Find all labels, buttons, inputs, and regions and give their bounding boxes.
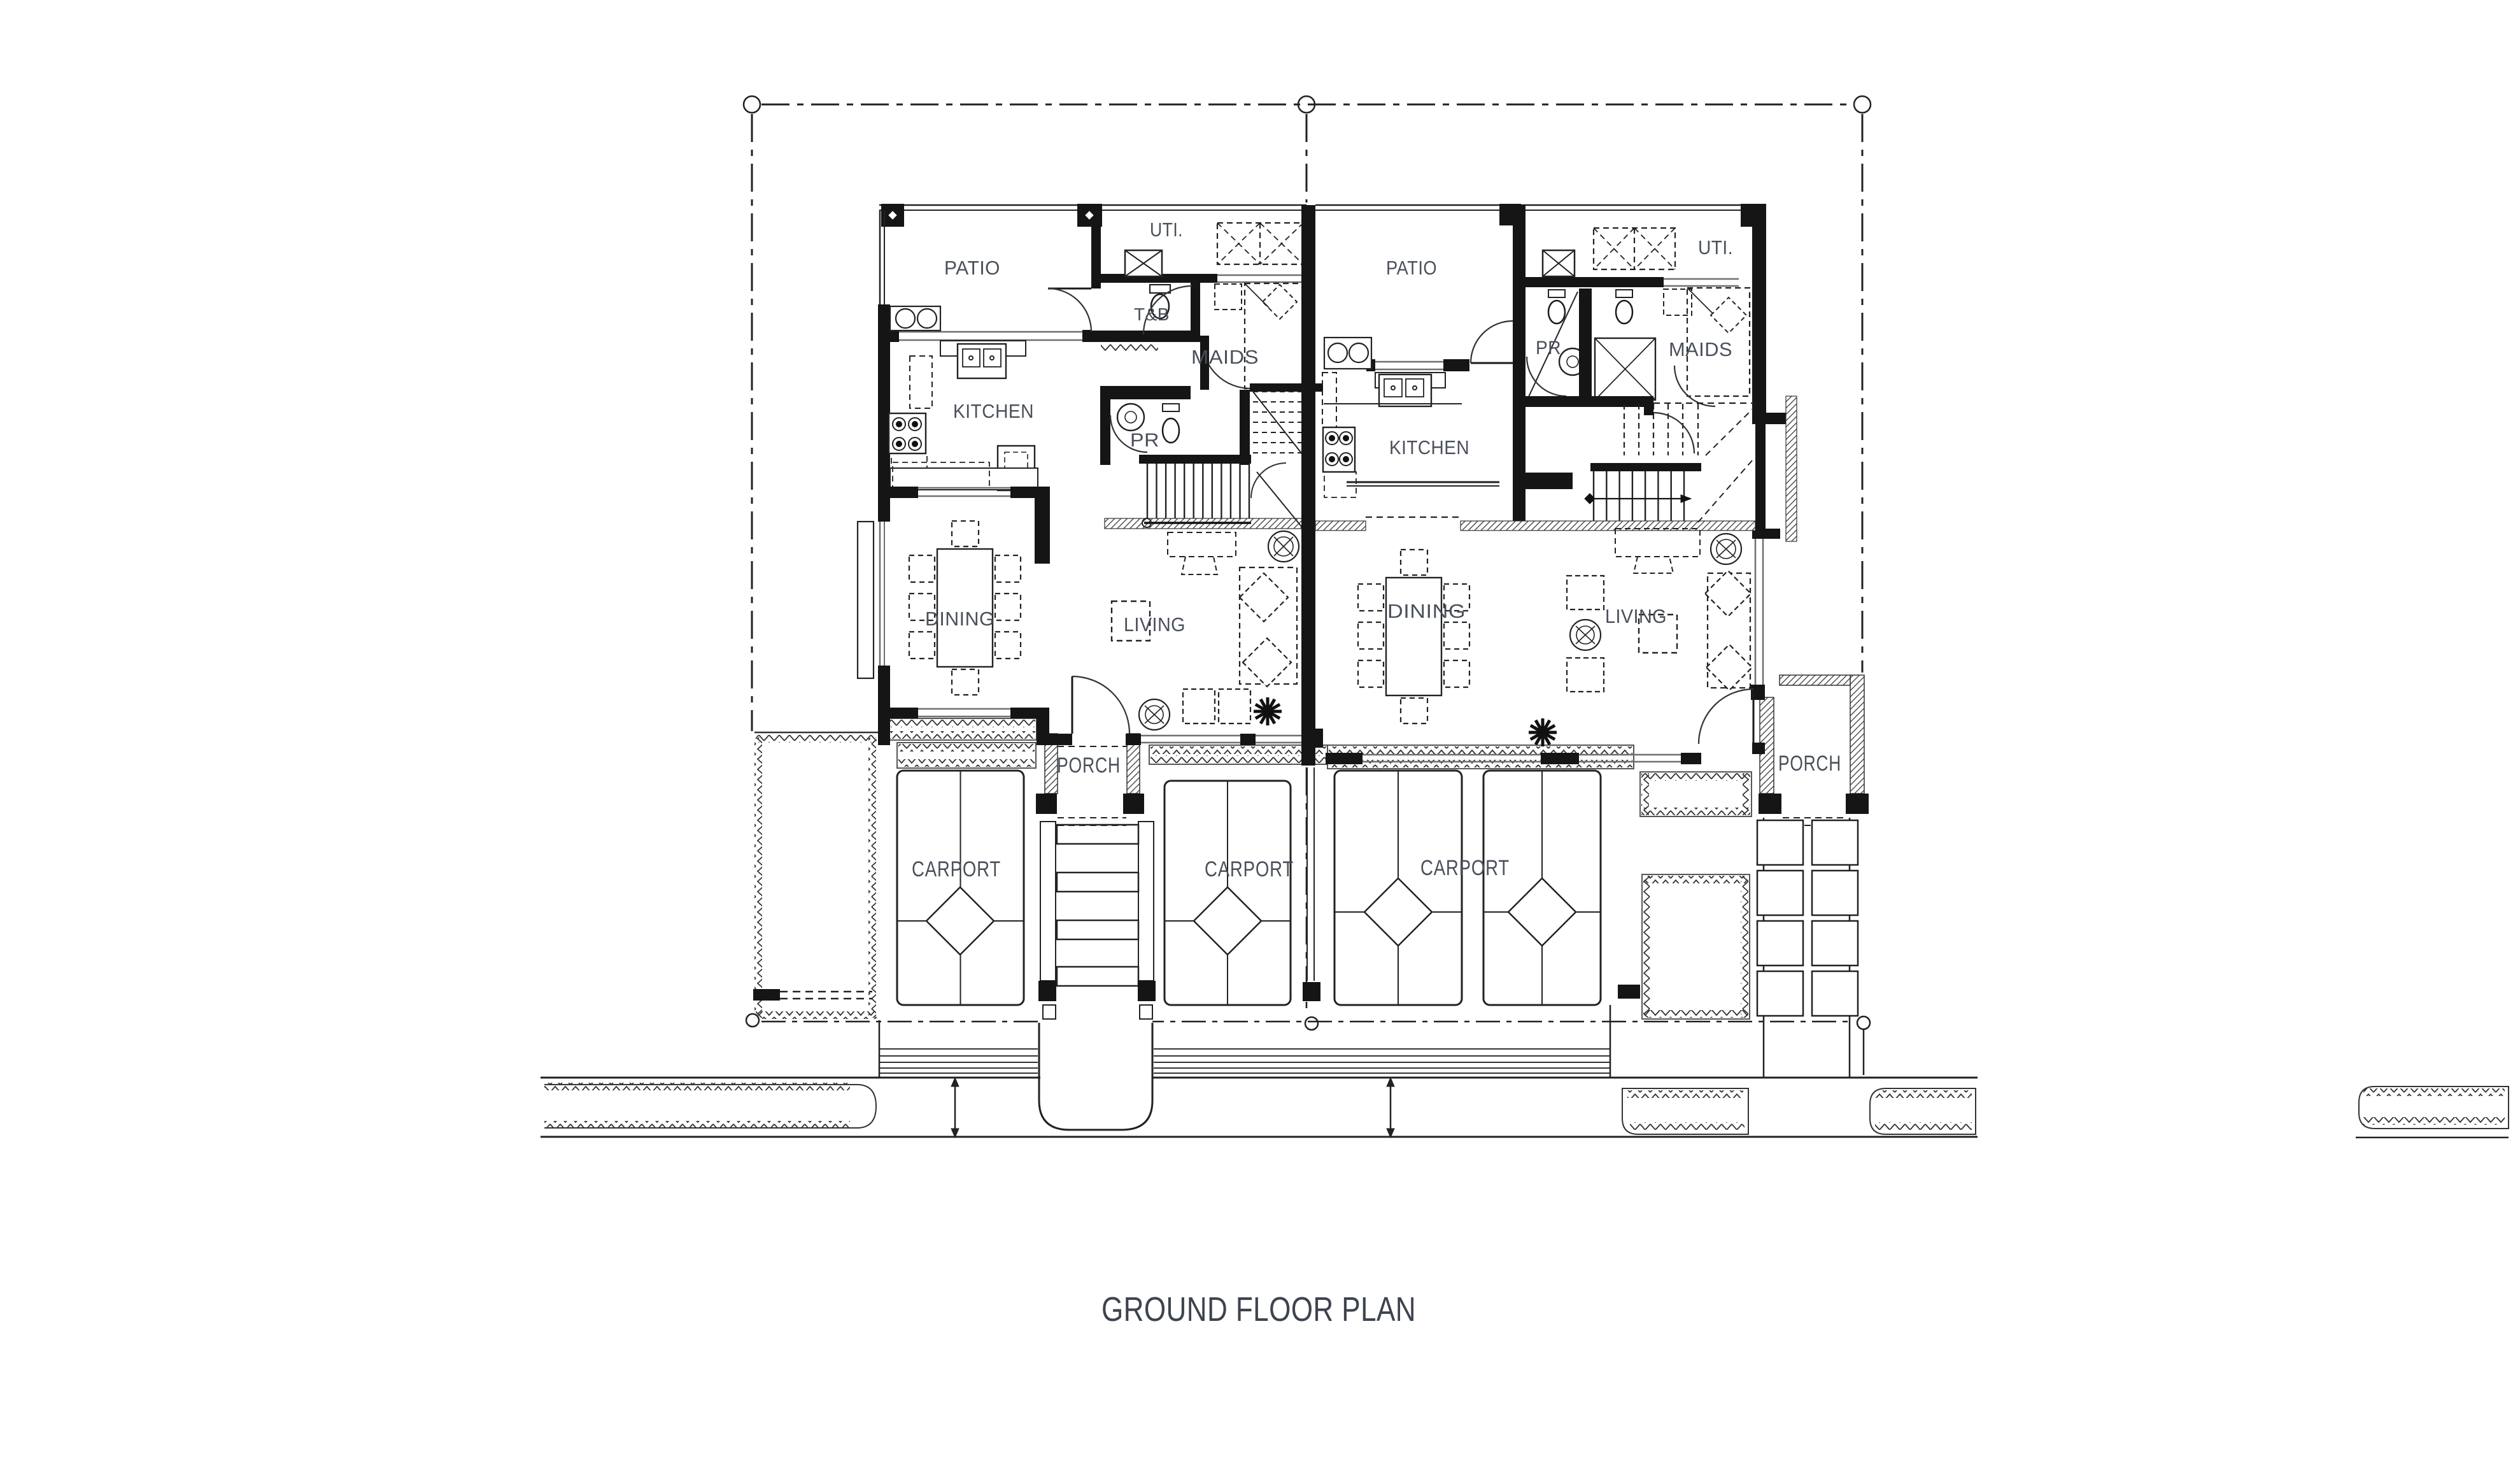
svg-text:KITCHEN: KITCHEN xyxy=(1389,436,1469,459)
svg-text:KITCHEN: KITCHEN xyxy=(953,400,1034,422)
svg-text:PATIO: PATIO xyxy=(944,257,1000,279)
svg-text:PORCH: PORCH xyxy=(1778,752,1841,776)
svg-text:PORCH: PORCH xyxy=(1057,753,1121,778)
svg-text:T&B: T&B xyxy=(1134,304,1170,324)
svg-text:MAIDS: MAIDS xyxy=(1669,338,1732,360)
svg-text:GROUND FLOOR PLAN: GROUND FLOOR PLAN xyxy=(1101,1290,1416,1329)
svg-text:PATIO: PATIO xyxy=(1386,257,1437,279)
svg-text:LIVING: LIVING xyxy=(1605,605,1667,627)
svg-text:DINING: DINING xyxy=(1387,600,1466,622)
svg-text:CARPORT: CARPORT xyxy=(912,857,1001,881)
svg-text:PR: PR xyxy=(1536,338,1561,359)
svg-text:UTI.: UTI. xyxy=(1150,218,1183,241)
svg-text:LIVING: LIVING xyxy=(1124,613,1186,636)
svg-text:PR: PR xyxy=(1130,430,1159,451)
svg-text:CARPORT: CARPORT xyxy=(1205,857,1294,881)
svg-text:MAIDS: MAIDS xyxy=(1191,346,1259,368)
svg-text:UTI.: UTI. xyxy=(1698,236,1733,259)
svg-text:CARPORT: CARPORT xyxy=(1420,856,1510,880)
svg-text:DINING: DINING xyxy=(925,608,995,630)
